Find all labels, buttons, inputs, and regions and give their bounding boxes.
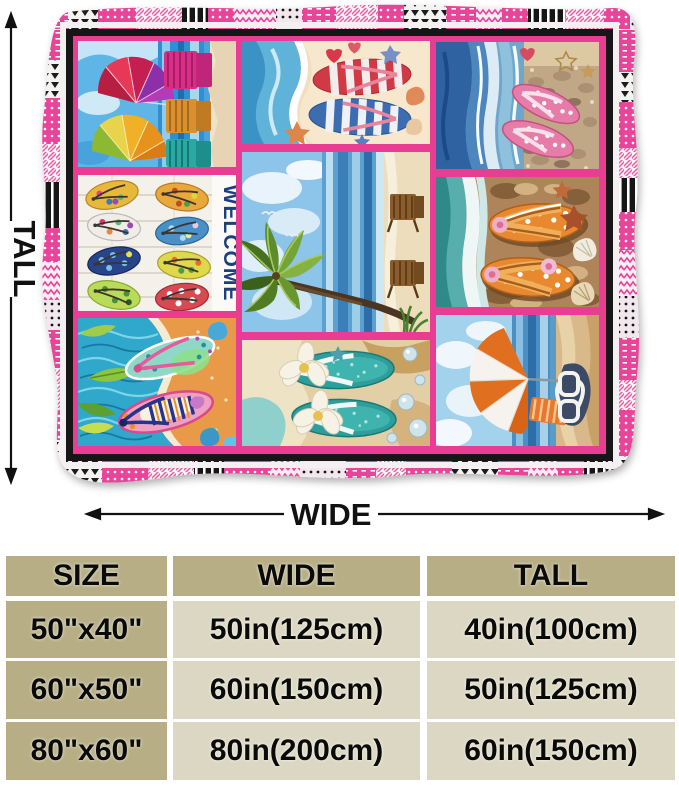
svg-text:TALL: TALL bbox=[7, 221, 42, 298]
svg-text:WIDE: WIDE bbox=[291, 497, 372, 530]
